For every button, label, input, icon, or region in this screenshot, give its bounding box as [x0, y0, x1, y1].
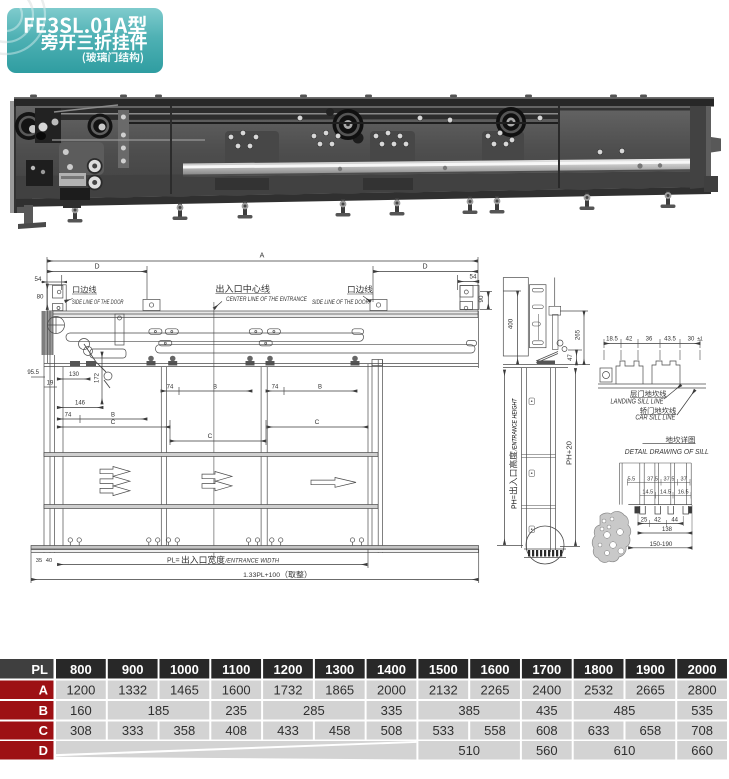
- svg-text:SIDE LINE OF THE DOOR: SIDE LINE OF THE DOOR: [312, 299, 369, 306]
- svg-text:1900: 1900: [636, 662, 665, 677]
- svg-text:608: 608: [536, 723, 558, 738]
- svg-text:1000: 1000: [170, 662, 199, 677]
- svg-text:708: 708: [691, 723, 713, 738]
- svg-text:CAR SILL LINE: CAR SILL LINE: [635, 415, 675, 422]
- svg-text:138: 138: [662, 527, 673, 533]
- svg-text:DETAIL DRAWING OF SILL: DETAIL DRAWING OF SILL: [625, 449, 709, 456]
- svg-text:74: 74: [272, 385, 279, 391]
- svg-text:LANDING SILL LINE: LANDING SILL LINE: [611, 399, 664, 406]
- svg-text:54: 54: [470, 274, 477, 281]
- svg-text:333: 333: [122, 723, 144, 738]
- svg-text:900: 900: [122, 662, 144, 677]
- svg-text:1600: 1600: [481, 662, 510, 677]
- svg-text:2400: 2400: [532, 682, 561, 697]
- svg-text:508: 508: [381, 723, 403, 738]
- svg-text:150-190: 150-190: [650, 541, 673, 548]
- svg-text:1700: 1700: [532, 662, 561, 677]
- svg-text:40: 40: [46, 558, 52, 564]
- svg-text:2132: 2132: [429, 682, 458, 697]
- svg-text:74: 74: [167, 385, 174, 391]
- svg-text:408: 408: [225, 723, 247, 738]
- svg-text:1.33PL+100: 1.33PL+100: [243, 572, 280, 579]
- svg-text:25: 25: [641, 518, 648, 524]
- svg-text:18.5: 18.5: [606, 337, 618, 343]
- svg-text:1600: 1600: [222, 682, 251, 697]
- svg-text:2000: 2000: [377, 682, 406, 697]
- svg-text:B: B: [111, 413, 115, 419]
- svg-text:1332: 1332: [118, 682, 147, 697]
- svg-text:54: 54: [35, 276, 42, 283]
- svg-text:265: 265: [575, 329, 582, 340]
- svg-text:1500: 1500: [429, 662, 458, 677]
- svg-text:1400: 1400: [377, 662, 406, 677]
- svg-text:1200: 1200: [274, 662, 303, 677]
- svg-text:358: 358: [174, 723, 196, 738]
- svg-text:2800: 2800: [688, 682, 717, 697]
- svg-text:1100: 1100: [222, 662, 250, 677]
- svg-text:74: 74: [65, 413, 72, 419]
- svg-text:2000: 2000: [688, 662, 717, 677]
- svg-text:C: C: [39, 723, 49, 738]
- svg-text:D: D: [94, 264, 99, 271]
- svg-text:1465: 1465: [170, 682, 199, 697]
- svg-text:±1: ±1: [697, 337, 703, 343]
- svg-text:C: C: [315, 419, 320, 426]
- svg-text:1732: 1732: [274, 682, 303, 697]
- svg-text:308: 308: [70, 723, 92, 738]
- svg-text:44: 44: [671, 518, 678, 524]
- svg-text:D: D: [422, 264, 427, 271]
- svg-text:335: 335: [381, 703, 403, 718]
- svg-text:1865: 1865: [325, 682, 354, 697]
- svg-text:14.5: 14.5: [660, 490, 671, 496]
- svg-text:37.5: 37.5: [647, 477, 658, 483]
- svg-text:47: 47: [568, 354, 574, 361]
- svg-text:PH=: PH=: [512, 495, 519, 509]
- svg-text:400: 400: [508, 318, 515, 329]
- svg-text:42: 42: [626, 337, 633, 343]
- svg-text:1200: 1200: [66, 682, 95, 697]
- svg-text:1300: 1300: [325, 662, 354, 677]
- svg-text:B: B: [39, 703, 48, 718]
- svg-text:42: 42: [654, 518, 661, 524]
- svg-text:458: 458: [329, 723, 351, 738]
- svg-text:35: 35: [36, 558, 42, 564]
- svg-text:16.5: 16.5: [678, 490, 689, 496]
- svg-text:658: 658: [640, 723, 662, 738]
- svg-text:535: 535: [691, 703, 713, 718]
- svg-text:485: 485: [614, 703, 636, 718]
- svg-text:146: 146: [75, 401, 86, 407]
- svg-text:2665: 2665: [636, 682, 665, 697]
- svg-text:30: 30: [688, 337, 695, 343]
- svg-text:510: 510: [458, 743, 480, 758]
- svg-text:A: A: [39, 683, 49, 698]
- svg-text:95.5: 95.5: [27, 370, 39, 376]
- svg-text:235: 235: [225, 703, 247, 718]
- svg-text:C: C: [111, 419, 116, 426]
- svg-text:2265: 2265: [481, 682, 510, 697]
- svg-text:1800: 1800: [584, 662, 613, 677]
- svg-text:533: 533: [432, 723, 454, 738]
- svg-text:610: 610: [614, 743, 636, 758]
- svg-text:433: 433: [277, 723, 299, 738]
- svg-text:285: 285: [303, 703, 325, 718]
- svg-text:160: 160: [70, 703, 92, 718]
- svg-text:5.5: 5.5: [628, 477, 636, 483]
- svg-text:435: 435: [536, 703, 558, 718]
- svg-text:14.5: 14.5: [642, 490, 653, 496]
- svg-text:800: 800: [70, 662, 92, 677]
- svg-text:B: B: [213, 385, 217, 391]
- svg-text:185: 185: [148, 703, 170, 718]
- svg-text:D: D: [39, 743, 48, 758]
- svg-text:130: 130: [69, 372, 80, 378]
- svg-text:PL=: PL=: [167, 558, 180, 565]
- svg-text:37.5: 37.5: [664, 477, 675, 483]
- svg-text:36: 36: [646, 337, 653, 343]
- svg-text:C: C: [208, 433, 213, 440]
- svg-text:CENTER LINE OF THE ENTRANCE: CENTER LINE OF THE ENTRANCE: [226, 296, 308, 303]
- svg-text:37: 37: [680, 477, 686, 483]
- svg-text:2532: 2532: [584, 682, 613, 697]
- svg-text:/ENTRANCE HEIGHT: /ENTRANCE HEIGHT: [512, 398, 519, 452]
- svg-text:/ENTRANCE WIDTH: /ENTRANCE WIDTH: [225, 558, 280, 565]
- svg-text:43.5: 43.5: [664, 337, 676, 343]
- svg-text:PL: PL: [31, 662, 48, 677]
- svg-text:A: A: [260, 253, 265, 260]
- svg-text:SIDE LINE OF THE DOOR: SIDE LINE OF THE DOOR: [72, 299, 124, 306]
- svg-text:172: 172: [95, 372, 101, 383]
- svg-text:560: 560: [536, 743, 558, 758]
- svg-text:633: 633: [588, 723, 610, 738]
- svg-text:B: B: [318, 385, 322, 391]
- svg-text:PH+20: PH+20: [567, 441, 574, 465]
- svg-text:19: 19: [47, 381, 54, 387]
- svg-text:80: 80: [37, 294, 44, 301]
- svg-text:558: 558: [484, 723, 506, 738]
- svg-text:660: 660: [691, 743, 713, 758]
- svg-text:385: 385: [458, 703, 480, 718]
